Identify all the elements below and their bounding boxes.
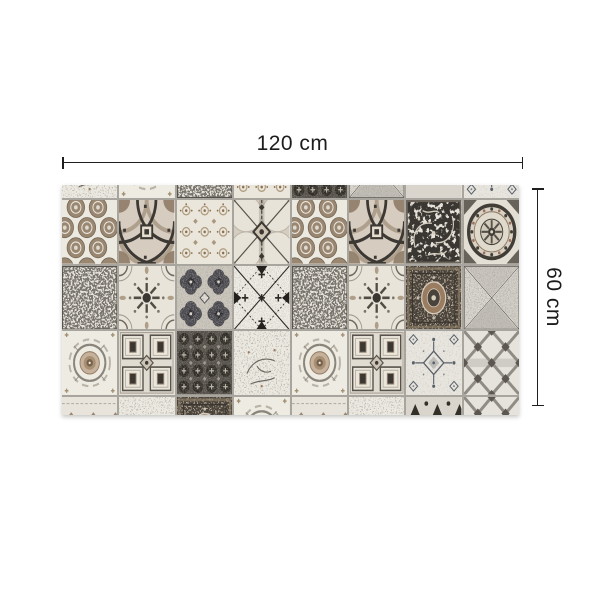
tile-quatrefoil — [177, 266, 232, 330]
tile-rose — [292, 331, 347, 395]
tile-maze — [62, 266, 117, 330]
tile-lattice — [234, 185, 289, 198]
tile-carpet — [177, 397, 232, 415]
rug-image — [62, 185, 519, 415]
width-dimension: 120 cm — [62, 133, 523, 163]
tile-row — [62, 266, 519, 330]
tile-floralmandala — [119, 266, 174, 330]
tile-mandala — [464, 200, 519, 264]
tile-rose — [234, 397, 289, 415]
tile-ninesq — [119, 331, 174, 395]
tile-lattice — [177, 200, 232, 264]
tile-ninesq — [349, 331, 404, 395]
tile-rose — [62, 331, 117, 395]
tile-zigzagdark — [406, 397, 461, 415]
tick-right — [522, 157, 524, 169]
tile-rose — [119, 185, 174, 198]
tile-maze — [177, 185, 232, 198]
tick-left — [62, 157, 64, 169]
tick-bottom — [532, 405, 544, 407]
tile-zigzagdark — [406, 185, 461, 198]
tile-sketch — [119, 397, 174, 415]
tile-trellis — [464, 397, 519, 415]
width-dimension-line — [62, 162, 523, 163]
tile-trianglespeck — [349, 185, 404, 198]
tile-sketch — [62, 185, 117, 198]
tile-chevron — [292, 397, 347, 415]
tile-carpet — [406, 266, 461, 330]
tile-row — [62, 185, 519, 198]
product-dimension-image: 120 cm 60 cm — [0, 0, 600, 600]
tile-row — [62, 331, 519, 395]
tile-circles — [292, 200, 347, 264]
tile-trellis — [464, 331, 519, 395]
tile-circles — [62, 200, 117, 264]
tile-row — [62, 397, 519, 415]
tile-darkfloral — [177, 331, 232, 395]
tile-sketch — [349, 397, 404, 415]
height-label: 60 cm — [542, 267, 564, 327]
tile-damaskcross — [406, 331, 461, 395]
tile-damaskcross — [464, 185, 519, 198]
tile-chevron — [62, 397, 117, 415]
tile-darkfloral — [292, 185, 347, 198]
tile-frame — [119, 200, 174, 264]
tile-compass — [234, 200, 289, 264]
tile-damaskdark — [406, 200, 461, 264]
tile-trianglespeck — [464, 266, 519, 330]
tile-row — [62, 200, 519, 264]
width-label: 120 cm — [62, 133, 523, 155]
height-dimension-line — [537, 188, 538, 406]
tile-diagcross — [234, 266, 289, 330]
tile-sketch — [234, 331, 289, 395]
tick-top — [532, 188, 544, 190]
tile-floralmandala — [349, 266, 404, 330]
tile-frame — [349, 200, 404, 264]
tile-maze — [292, 266, 347, 330]
